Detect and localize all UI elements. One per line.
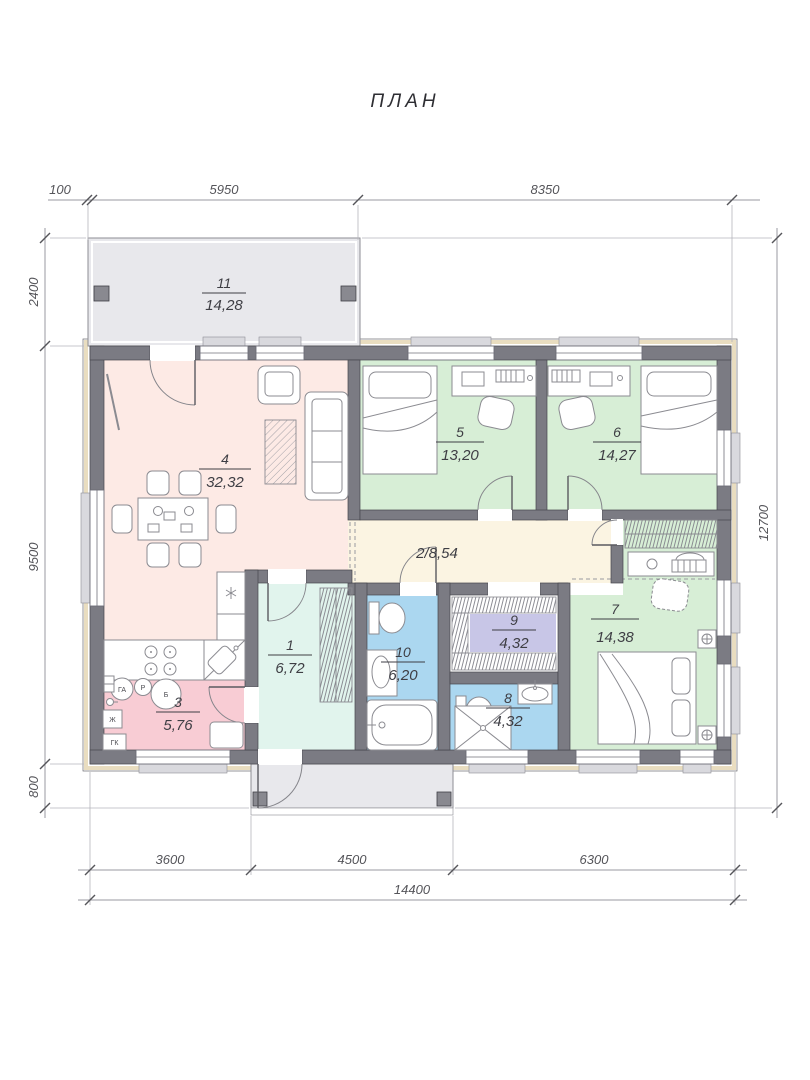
- svg-text:14,27: 14,27: [598, 447, 636, 464]
- svg-text:3: 3: [174, 694, 182, 710]
- svg-text:12700: 12700: [756, 504, 771, 541]
- entry-wardrobe: [320, 588, 352, 702]
- svg-text:10: 10: [395, 644, 411, 660]
- svg-text:5950: 5950: [210, 182, 240, 197]
- terrace-column: [94, 286, 109, 301]
- svg-text:100: 100: [49, 182, 71, 197]
- svg-text:6: 6: [613, 424, 621, 440]
- svg-text:9: 9: [510, 612, 518, 628]
- svg-text:11: 11: [217, 275, 232, 291]
- floor-plan-drawing: ПЛАН: [0, 0, 810, 1080]
- porch-column: [437, 792, 451, 806]
- terrace-column: [341, 286, 356, 301]
- svg-text:14,38: 14,38: [596, 629, 634, 646]
- bedroom7-wardrobe: [625, 520, 717, 548]
- svg-text:14,28: 14,28: [205, 297, 243, 314]
- svg-text:5: 5: [456, 424, 464, 440]
- zh-label: Ж: [109, 717, 116, 724]
- svg-text:4500: 4500: [338, 852, 368, 867]
- terrace: [88, 238, 360, 346]
- rug: [265, 420, 296, 484]
- svg-text:3600: 3600: [156, 852, 186, 867]
- sofa: [305, 392, 348, 500]
- bathtub: [367, 700, 437, 750]
- boiler-label: Б: [164, 692, 169, 699]
- gas-analyzer-label: ГА: [118, 687, 126, 694]
- room-2-fill: [348, 520, 617, 583]
- svg-text:1: 1: [286, 637, 294, 653]
- svg-text:7: 7: [611, 601, 620, 617]
- svg-text:8350: 8350: [531, 182, 561, 197]
- armchair: [258, 366, 300, 404]
- svg-text:6,20: 6,20: [388, 667, 418, 684]
- svg-text:4: 4: [221, 451, 229, 467]
- double-bed: [598, 652, 696, 744]
- gk-label: ГК: [111, 740, 120, 747]
- svg-text:4,32: 4,32: [493, 713, 523, 730]
- page-title: ПЛАН: [370, 91, 439, 112]
- bed: [641, 366, 717, 474]
- svg-text:13,20: 13,20: [441, 447, 479, 464]
- toilet: [369, 602, 405, 634]
- svg-text:6,72: 6,72: [275, 660, 305, 677]
- floor-plan-page: ПЛАН: [0, 0, 810, 1080]
- bed: [363, 366, 437, 474]
- svg-text:800: 800: [26, 775, 41, 797]
- room-2-label: 2/8,54: [415, 545, 458, 562]
- porch: [251, 764, 453, 815]
- svg-text:8: 8: [504, 690, 512, 706]
- sink: [518, 680, 552, 704]
- fridge: [217, 572, 245, 614]
- svg-text:4,32: 4,32: [499, 635, 529, 652]
- porch-column: [253, 792, 267, 806]
- svg-text:32,32: 32,32: [206, 474, 244, 491]
- svg-text:2400: 2400: [26, 277, 41, 308]
- svg-text:6300: 6300: [580, 852, 610, 867]
- svg-text:14400: 14400: [394, 882, 431, 897]
- r-label: Р: [141, 685, 146, 692]
- svg-text:9500: 9500: [26, 542, 41, 572]
- svg-text:2/8,54: 2/8,54: [415, 545, 458, 562]
- svg-text:5,76: 5,76: [163, 717, 193, 734]
